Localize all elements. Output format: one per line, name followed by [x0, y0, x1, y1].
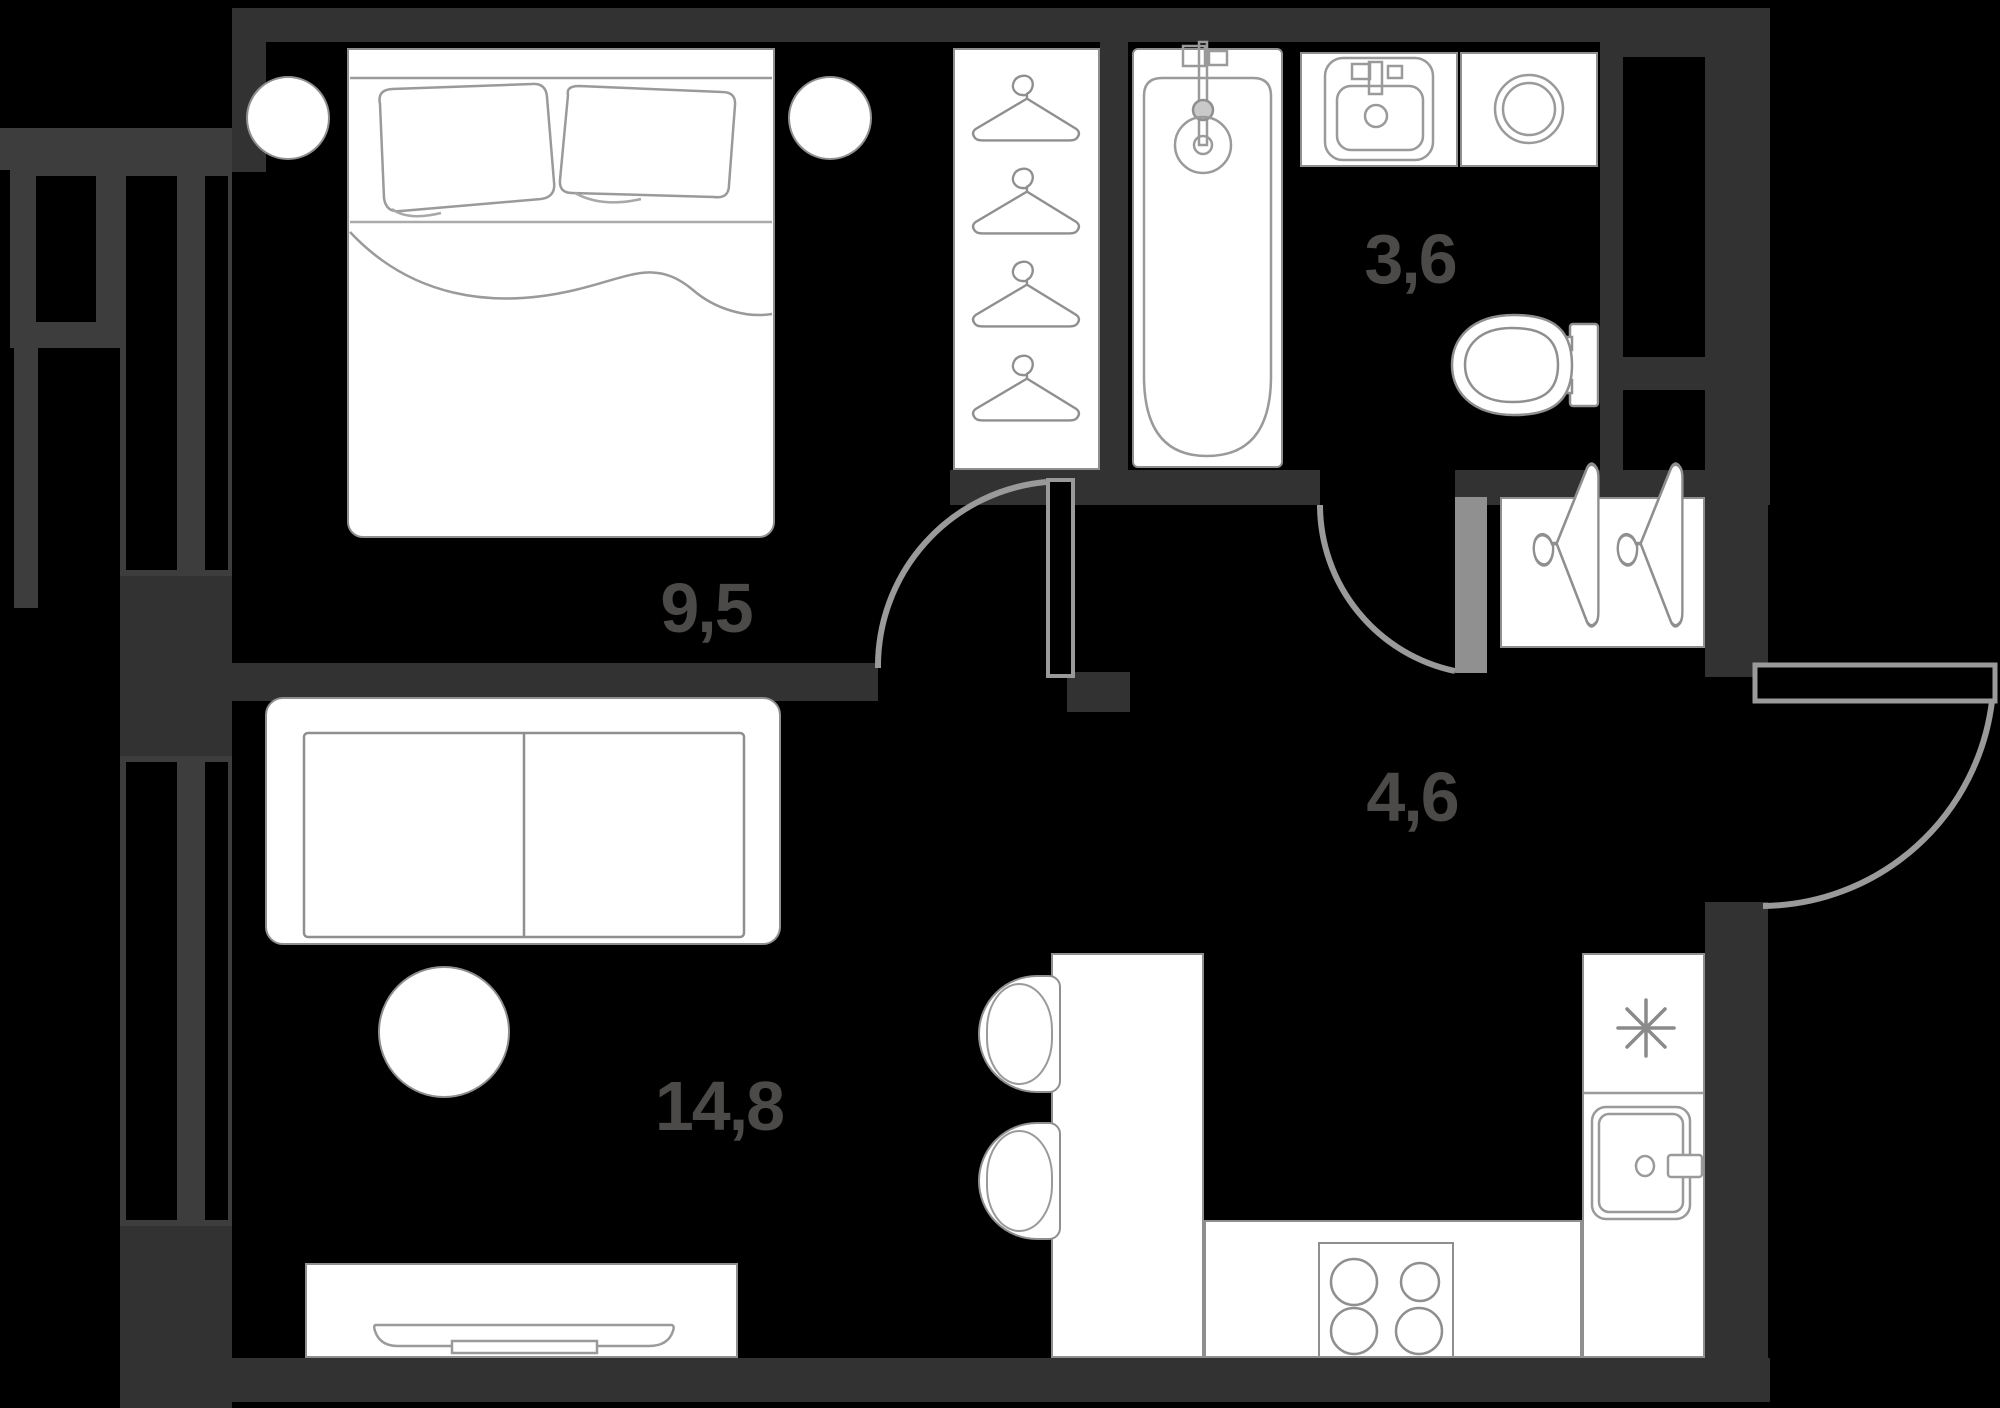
- door-leaf: [1455, 497, 1487, 673]
- tv-stand: [305, 1263, 738, 1358]
- shaft-opening: [1623, 390, 1705, 470]
- room-area-living: 14,8: [655, 1066, 783, 1146]
- kitchen-counter-right: [1582, 953, 1705, 1358]
- window-pane: [126, 176, 177, 570]
- bedroom-door: [878, 480, 1073, 676]
- wall-right-lower: [1705, 902, 1768, 1402]
- room-area-bathroom: 3,6: [1364, 219, 1455, 299]
- nightstand-right: [788, 76, 872, 160]
- double-bed: [347, 48, 775, 538]
- window-living: [120, 756, 232, 1226]
- bathtub: [1132, 48, 1283, 468]
- room-area-hallway: 4,6: [1366, 757, 1457, 837]
- hallway-closet: [1500, 497, 1705, 648]
- toilet-bowl: [1452, 315, 1572, 415]
- wall-bathroom-bottom-left: [950, 470, 1320, 505]
- window-pane: [126, 762, 177, 1220]
- window-pane: [205, 762, 228, 1220]
- toilet: [1452, 315, 1598, 415]
- wall-window-pier: [120, 576, 232, 756]
- wall-top: [232, 8, 1770, 42]
- sofa: [265, 697, 781, 945]
- nightstand-left: [246, 76, 330, 160]
- window-pane: [205, 176, 228, 570]
- door-leaf: [1755, 665, 1995, 701]
- door-swing-arc: [1320, 505, 1455, 671]
- stove: [1318, 1242, 1454, 1358]
- chair-bottom: [978, 1122, 1061, 1240]
- door-leaf: [1048, 480, 1073, 676]
- wall-door-block: [1067, 672, 1130, 712]
- washing-machine: [1460, 52, 1598, 167]
- shaft-opening: [1623, 57, 1705, 357]
- chair-top: [978, 975, 1061, 1093]
- door-swing-arc: [1763, 701, 1992, 906]
- round-table: [378, 966, 510, 1098]
- toilet-tank: [1570, 324, 1598, 406]
- wall-right-upper: [1705, 505, 1768, 677]
- room-area-bedroom: 9,5: [660, 568, 751, 648]
- wall-bathroom-left: [1100, 42, 1128, 505]
- wardrobe: [953, 48, 1100, 470]
- kitchen-counter-left: [1051, 953, 1204, 1358]
- door-swing-arc: [878, 482, 1046, 668]
- bathroom-door: [1320, 497, 1487, 673]
- window-bedroom: [120, 170, 232, 576]
- entry-door: [1755, 665, 1995, 906]
- wall-bedroom-divider: [232, 663, 878, 701]
- wall-shaft-block: [1600, 42, 1770, 505]
- balcony-frame: [10, 150, 122, 348]
- balcony-side-rail: [14, 348, 38, 608]
- wall-bottom: [120, 1358, 1770, 1402]
- floor-plan: 9,5 3,6 4,6 14,8: [0, 0, 2000, 1408]
- bathroom-sink-counter: [1300, 52, 1458, 167]
